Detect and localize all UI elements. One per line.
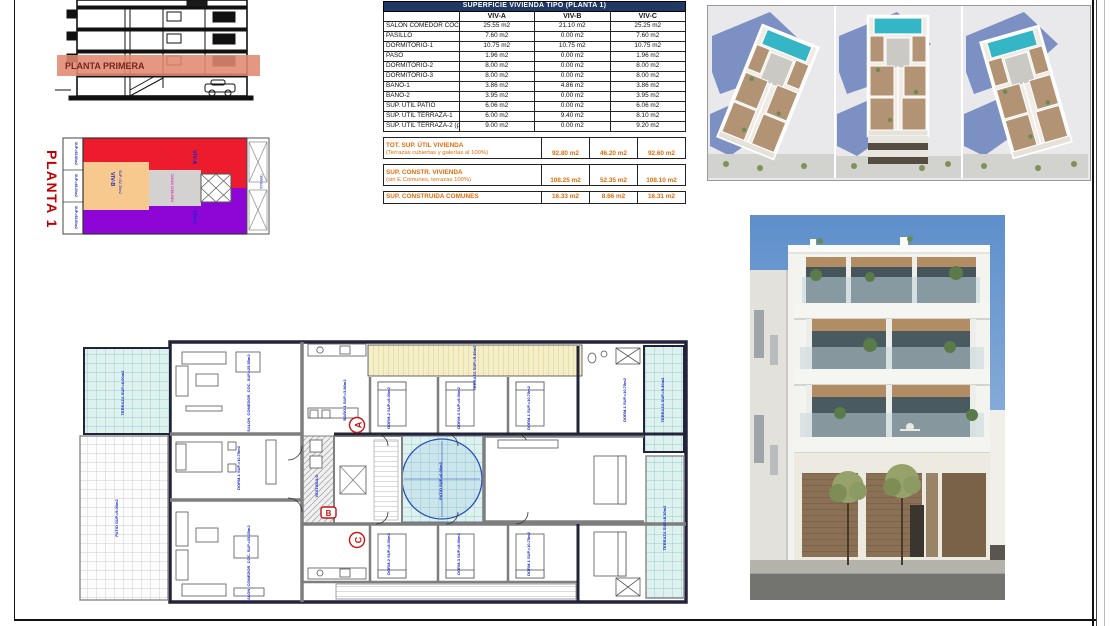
label-dorm-left: DORM-1 SUP.=10.75m2 [236, 445, 241, 490]
terraza-column [247, 138, 269, 234]
render-panel-3 [962, 6, 1088, 178]
sheet-border-right-outer [1104, 0, 1105, 626]
label-dorm-a2: DORM-3 SUP.=8.00m2 [456, 386, 461, 428]
total-val-b: 52.35 m2 [590, 165, 638, 186]
row-val-b: 0.00 m2 [535, 122, 611, 132]
row-label: SUP. ÚTIL PATIO [384, 102, 460, 112]
total-val-b: 46.20 m2 [590, 138, 638, 159]
row-val-a: 25.55 m2 [459, 22, 535, 32]
row-label: PASILLO [384, 32, 460, 42]
area-col-vivb: VIV-B [535, 12, 611, 22]
row-val-c: 6.06 m2 [610, 102, 686, 112]
total-val-a: 92.80 m2 [542, 138, 590, 159]
total-val-c: 92.60 m2 [638, 138, 686, 159]
row-val-b: 0.00 m2 [535, 72, 611, 82]
label-dorm-c2: DORM-3 SUP.=8.00m2 [456, 532, 461, 574]
total-label: SUP. CONSTR. VIVIENDA [386, 169, 539, 177]
row-val-c: 8.00 m2 [610, 62, 686, 72]
table-row: BAÑO-23.95 m20.00 m23.95 m2 [384, 92, 686, 102]
table-row: PASO1.96 m20.00 m21.96 m2 [384, 52, 686, 62]
total-note: (Terrazas cubiertas y galerías al 100%) [386, 150, 539, 158]
total-label: TOT. SUP. ÚTIL VIVIENDA [386, 142, 539, 150]
row-val-c: 7.60 m2 [610, 32, 686, 42]
table-row: DORMITORIO-28.00 m20.00 m28.00 m2 [384, 62, 686, 72]
label-comunes: ZONAS COMUNES [170, 174, 174, 202]
sheet-border-right-thin [1096, 0, 1097, 626]
zone-viv-b [83, 162, 149, 210]
table-row: SUP. ÚTIL TERRAZA-16.00 m29.40 m28.10 m2 [384, 112, 686, 122]
side-label-c: SUP.=92.60m2 [74, 206, 78, 229]
row-val-c: 25.25 m2 [610, 22, 686, 32]
row-label: DORMITORIO-3 [384, 72, 460, 82]
render-panel-2 [835, 6, 961, 178]
row-val-c: 3.86 m2 [610, 82, 686, 92]
building-section-drawing: PLANTA PRIMERA [55, 0, 267, 108]
floor-plan: TERRAZA SUP.=6.00m2 PATIO SUP.=9.00m2 SA… [78, 336, 696, 612]
row-val-b: 4.86 m2 [535, 82, 611, 92]
label-dorm-b: DORM-1 SUP.=10.75m2 [622, 377, 627, 422]
area-table-title: SUPERFICIE VIVIENDA TIPO (PLANTA 1) [384, 2, 686, 12]
row-val-b: 0.00 m2 [535, 92, 611, 102]
label-viv-a: VIV-A [191, 150, 197, 164]
label-terrace-r1: TERRAZA SUP.=9.40m2 [660, 377, 665, 423]
basement-car-icon [205, 80, 235, 96]
aerial-renders-svg [708, 6, 1088, 178]
sheet-border-left [14, 0, 15, 620]
total-val-b: 8.66 m2 [590, 192, 638, 204]
total-val-c: 108.10 m2 [638, 165, 686, 186]
drawing-sheet: PLANTA PRIMERA PLANTA 1 SUP.=92.80m2 SUP… [0, 0, 1110, 626]
render-panel-1 [708, 6, 834, 178]
table-row: DORMITORIO-38.00 m20.00 m28.00 m2 [384, 72, 686, 82]
row-val-a: 9.00 m2 [459, 122, 535, 132]
label-salon-bot: SALON_COMEDOR_COC. SUP.=25.25m2 [246, 525, 251, 603]
table-row: BAÑO-13.86 m24.86 m23.86 m2 [384, 82, 686, 92]
row-val-c: 8.00 m2 [610, 72, 686, 82]
table-row: SUP. ÚTIL PATIO6.06 m20.00 m26.06 m2 [384, 102, 686, 112]
row-val-b: 10.75 m2 [535, 42, 611, 52]
label-viv-b-sup: SUP.=52.35m2 [118, 170, 122, 194]
label-viv-b: VIV-B [109, 172, 115, 186]
table-row: SUP. ÚTIL TERRAZA-2 (patio trasero)9.00 … [384, 122, 686, 132]
label-terraza: TERRAZA [259, 174, 263, 190]
aerial-renders-strip [707, 5, 1091, 181]
section-floor-band: PLANTA PRIMERA [57, 55, 260, 76]
patio-left [80, 436, 168, 600]
row-val-a: 3.95 m2 [459, 92, 535, 102]
marker-c: C [353, 536, 363, 543]
row-val-b: 21.10 m2 [535, 22, 611, 32]
key-plan-title: PLANTA 1 [44, 150, 60, 229]
row-val-a: 8.00 m2 [459, 72, 535, 82]
label-salon-top: SALON_COMEDOR_COC. SUP.=25.55m2 [246, 354, 251, 432]
neighbor-building-left [750, 270, 790, 600]
row-label: SALON COMEDOR COCINA [384, 22, 460, 32]
key-plan-side-strip: SUP.=92.80m2 SUP.=46.20m2 SUP.=92.60m2 [63, 138, 83, 234]
area-table-main: SUPERFICIE VIVIENDA TIPO (PLANTA 1) VIV-… [383, 1, 686, 132]
label-terrace-r2: TERRAZA SUP.=8.10m2 [662, 505, 667, 551]
row-val-c: 9.20 m2 [610, 122, 686, 132]
table-row: PASILLO7.60 m20.00 m27.60 m2 [384, 32, 686, 42]
row-val-c: 8.10 m2 [610, 112, 686, 122]
label-vestibulo: VESTIBULO [314, 475, 319, 498]
label-patio-c: PATIO SUP.=6.06m2 [438, 461, 443, 499]
row-val-a: 1.96 m2 [459, 52, 535, 62]
total-val-c: 16.31 m2 [638, 192, 686, 204]
label-terrace-top: TERRAZA SUP.=9.40m2 [472, 345, 477, 391]
row-val-a: 8.00 m2 [459, 62, 535, 72]
attic-terrace [802, 257, 980, 303]
main-building [788, 236, 990, 600]
marker-b: B [326, 509, 332, 518]
total-val-a: 16.33 m2 [542, 192, 590, 204]
zone-comunes [149, 170, 201, 206]
row-val-a: 6.00 m2 [459, 112, 535, 122]
street [750, 560, 1005, 600]
row-val-b: 0.00 m2 [535, 62, 611, 72]
row-label: DORMITORIO-1 [384, 42, 460, 52]
row-val-c: 1.96 m2 [610, 52, 686, 62]
row-val-a: 3.86 m2 [459, 82, 535, 92]
floor2-balcony [800, 319, 984, 369]
row-val-c: 3.95 m2 [610, 92, 686, 102]
total-label-cell: TOT. SUP. ÚTIL VIVIENDA (Terrazas cubier… [384, 138, 542, 159]
row-label: BAÑO-2 [384, 92, 460, 102]
area-table-comunes: SUP. CONSTRUIDA COMUNES 16.33 m2 8.66 m2… [383, 191, 686, 204]
row-val-a: 10.75 m2 [459, 42, 535, 52]
sheet-border-bottom [14, 619, 1097, 621]
label-dorm-c3: DORM-1 SUP.=10.75m2 [526, 531, 531, 576]
facade-render [750, 215, 1005, 600]
row-val-b: 9.40 m2 [535, 112, 611, 122]
row-label: DORMITORIO-2 [384, 62, 460, 72]
label-terrace-tl: TERRAZA SUP.=6.00m2 [120, 370, 125, 416]
key-plan-planta1: PLANTA 1 SUP.=92.80m2 SUP.=46.20m2 SUP.=… [35, 128, 275, 243]
sheet-border-right-thick [1092, 0, 1094, 626]
total-note: (sin E.Comunes, terrazas 100%) [386, 177, 539, 185]
row-val-a: 6.06 m2 [459, 102, 535, 112]
row-val-b: 0.00 m2 [535, 52, 611, 62]
surface-area-table: SUPERFICIE VIVIENDA TIPO (PLANTA 1) VIV-… [383, 1, 686, 204]
area-col-blank [384, 12, 460, 22]
label-patio-left: PATIO SUP.=9.00m2 [114, 498, 119, 536]
garage-door-3 [942, 473, 986, 557]
corridor-bottom-hatched [336, 584, 576, 599]
row-val-b: 0.00 m2 [535, 32, 611, 42]
label-dorm-c1: DORM-2 SUP.=8.00m2 [386, 532, 391, 574]
section-band-label: PLANTA PRIMERA [65, 61, 145, 71]
floor1-balcony [800, 385, 984, 437]
row-label: SUP. ÚTIL TERRAZA-1 [384, 112, 460, 122]
label-dorm-a1: DORM-2 SUP.=8.00m2 [386, 386, 391, 428]
total-label: SUP. CONSTRUIDA COMUNES [384, 192, 542, 204]
side-label-a: SUP.=92.80m2 [74, 142, 78, 165]
row-label: BAÑO-1 [384, 82, 460, 92]
row-val-c: 10.75 m2 [610, 42, 686, 52]
area-col-vivc: VIV-C [610, 12, 686, 22]
row-val-b: 0.00 m2 [535, 102, 611, 112]
row-label: PASO [384, 52, 460, 62]
total-label-cell: SUP. CONSTR. VIVIENDA (sin E.Comunes, te… [384, 165, 542, 186]
area-table-constr: SUP. CONSTR. VIVIENDA (sin E.Comunes, te… [383, 164, 686, 186]
marker-a: A [353, 421, 363, 428]
label-dorm-a3: DORM-1 SUP.=10.75m2 [526, 385, 531, 430]
table-row: SALON COMEDOR COCINA25.55 m221.10 m225.2… [384, 22, 686, 32]
area-table-total-util: TOT. SUP. ÚTIL VIVIENDA (Terrazas cubier… [383, 137, 686, 159]
label-viv-c: VIV-C [191, 210, 197, 224]
area-col-viva: VIV-A [459, 12, 535, 22]
row-val-a: 7.60 m2 [459, 32, 535, 42]
row-label: SUP. ÚTIL TERRAZA-2 (patio trasero) [384, 122, 460, 132]
table-row: DORMITORIO-110.75 m210.75 m210.75 m2 [384, 42, 686, 52]
label-bano1: BAÑO-1 SUP.=3.86m2 [342, 379, 347, 421]
total-val-a: 108.25 m2 [542, 165, 590, 186]
side-label-b: SUP.=46.20m2 [74, 174, 78, 197]
terrace-top-left [84, 348, 170, 434]
